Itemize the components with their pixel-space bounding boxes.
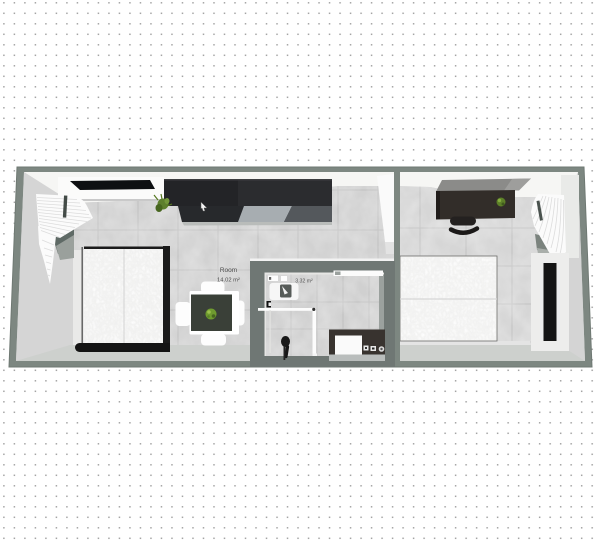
- svg-text:Room: Room: [220, 267, 237, 274]
- svg-text:14.02 m²: 14.02 m²: [217, 278, 240, 284]
- svg-text:3.32 m²: 3.32 m²: [295, 279, 313, 285]
